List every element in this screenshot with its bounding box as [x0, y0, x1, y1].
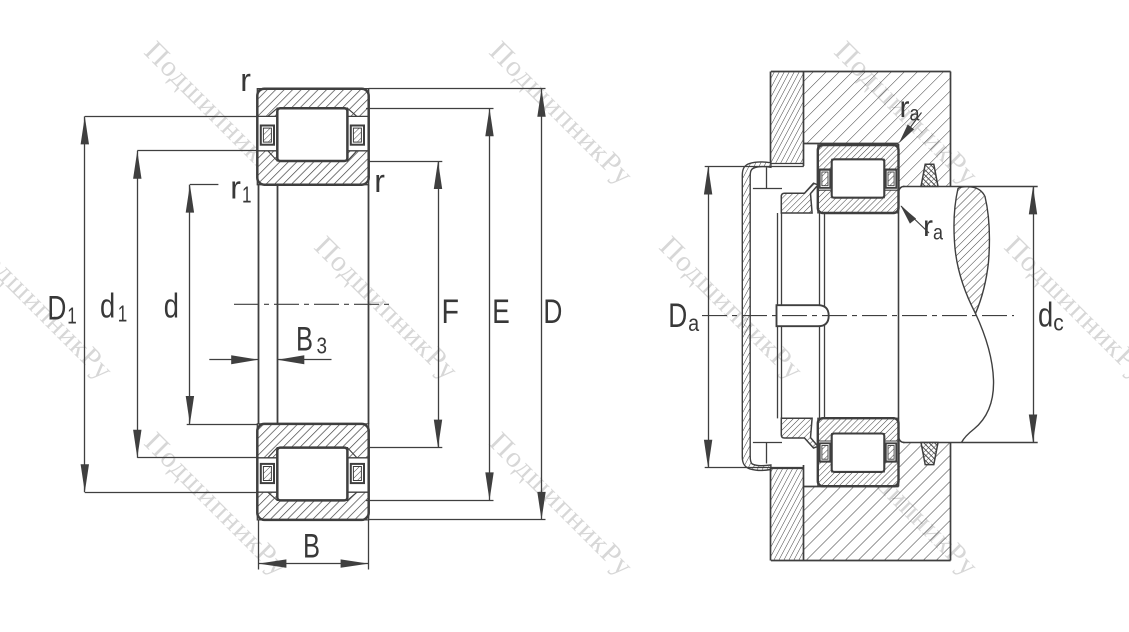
svg-text:r: r — [374, 163, 385, 199]
svg-text:d: d — [100, 288, 115, 326]
svg-text:D: D — [543, 293, 562, 331]
svg-text:1: 1 — [118, 301, 128, 327]
svg-text:B: B — [296, 321, 313, 359]
svg-text:r: r — [923, 210, 933, 243]
svg-text:1: 1 — [67, 303, 77, 329]
svg-text:r: r — [230, 170, 241, 206]
svg-text:a: a — [933, 222, 943, 245]
svg-text:D: D — [47, 290, 66, 328]
svg-text:ПодшипникРу: ПодшипникРу — [483, 426, 640, 583]
svg-text:ПодшипникРу: ПодшипникРу — [998, 230, 1129, 387]
svg-text:c: c — [1053, 310, 1064, 336]
svg-text:d: d — [164, 288, 179, 326]
svg-text:3: 3 — [317, 333, 328, 359]
svg-text:D: D — [668, 297, 687, 335]
svg-text:r: r — [900, 91, 910, 124]
svg-text:r: r — [240, 62, 251, 98]
svg-text:E: E — [492, 293, 510, 331]
svg-text:d: d — [1038, 297, 1053, 335]
svg-text:B: B — [303, 528, 320, 566]
svg-text:ПодшипникРу: ПодшипникРу — [483, 35, 640, 192]
svg-text:1: 1 — [242, 182, 252, 208]
svg-text:F: F — [442, 293, 460, 331]
svg-text:a: a — [688, 310, 699, 336]
